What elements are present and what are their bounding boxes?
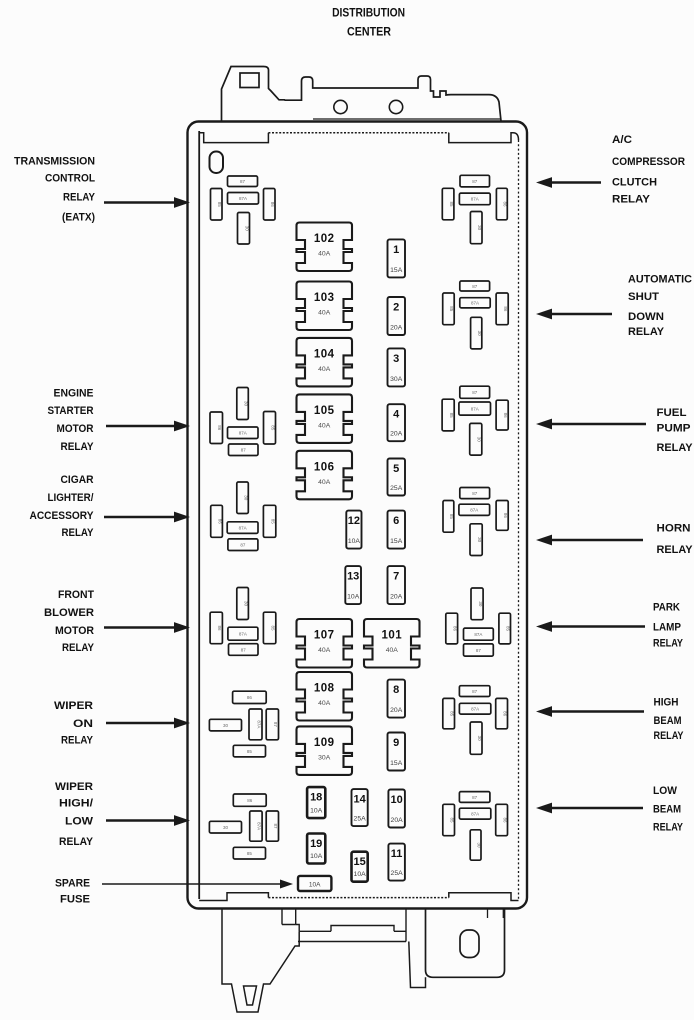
svg-text:87: 87 [472,491,478,496]
svg-text:10A: 10A [348,538,361,545]
svg-text:87: 87 [472,284,478,289]
svg-text:30: 30 [477,736,482,742]
svg-text:40A: 40A [318,251,331,258]
svg-text:FRONT: FRONT [58,589,94,601]
svg-text:ENGINE: ENGINE [54,388,94,400]
svg-text:4: 4 [393,409,400,421]
svg-text:86: 86 [503,306,508,312]
svg-text:87: 87 [476,648,482,653]
svg-text:30: 30 [243,401,248,407]
svg-text:85: 85 [449,514,454,520]
svg-text:103: 103 [314,292,335,304]
svg-text:87A: 87A [239,431,247,436]
svg-text:86: 86 [247,798,253,803]
svg-text:14: 14 [353,794,366,806]
svg-text:86: 86 [217,519,222,525]
svg-text:LAMP: LAMP [653,622,681,634]
svg-text:85: 85 [217,202,222,208]
svg-text:86: 86 [217,425,222,431]
svg-text:RELAY: RELAY [654,730,685,742]
svg-text:86: 86 [452,626,457,632]
svg-text:DISTRIBUTION: DISTRIBUTION [332,6,405,20]
svg-text:15A: 15A [390,760,403,767]
svg-text:85: 85 [449,202,454,208]
svg-text:30: 30 [476,842,481,848]
svg-text:86: 86 [503,513,508,519]
svg-text:30A: 30A [390,376,403,383]
svg-text:20A: 20A [390,707,403,714]
svg-text:(EATX): (EATX) [62,211,95,223]
svg-text:86: 86 [247,695,253,700]
svg-text:10A: 10A [310,853,323,860]
svg-text:PARK: PARK [653,602,680,614]
svg-text:10A: 10A [347,594,360,601]
svg-text:107: 107 [314,630,335,642]
svg-text:8: 8 [393,684,399,696]
svg-text:19: 19 [310,838,322,850]
svg-text:87: 87 [241,448,247,453]
svg-text:PUMP: PUMP [657,423,691,435]
svg-text:BLOWER: BLOWER [44,607,94,619]
svg-text:109: 109 [314,737,335,749]
svg-text:RELAY: RELAY [59,836,94,848]
svg-text:87A: 87A [474,632,482,637]
svg-text:HIGH: HIGH [654,697,679,709]
svg-text:DOWN: DOWN [628,311,664,323]
svg-text:FUEL: FUEL [657,407,687,419]
svg-text:9: 9 [393,737,399,749]
svg-text:RELAY: RELAY [63,192,96,204]
svg-text:13: 13 [347,571,359,583]
svg-text:87: 87 [241,647,247,652]
svg-text:10A: 10A [310,808,323,815]
svg-text:106: 106 [314,461,335,473]
svg-text:6: 6 [393,515,399,527]
svg-text:87A: 87A [256,720,261,728]
svg-text:10A: 10A [354,871,367,878]
svg-text:STARTER: STARTER [48,405,94,417]
svg-text:RELAY: RELAY [612,194,651,206]
svg-text:15A: 15A [390,538,403,545]
svg-text:20A: 20A [390,431,403,438]
svg-text:18: 18 [310,792,322,804]
svg-text:85: 85 [270,425,275,431]
svg-text:CIGAR: CIGAR [61,474,94,486]
svg-text:40A: 40A [318,700,331,707]
svg-text:30A: 30A [318,754,331,761]
svg-text:105: 105 [314,405,335,417]
svg-text:5: 5 [393,463,399,475]
svg-text:COMPRESSOR: COMPRESSOR [612,156,685,168]
svg-text:87A: 87A [470,508,478,513]
svg-text:10: 10 [390,794,402,806]
svg-text:MOTOR: MOTOR [57,423,94,435]
svg-text:85: 85 [449,306,454,312]
svg-text:87A: 87A [257,822,262,830]
svg-text:87: 87 [472,390,478,395]
svg-text:ACCESSORY: ACCESSORY [30,510,95,522]
svg-text:87A: 87A [471,197,479,202]
svg-text:7: 7 [393,571,399,583]
svg-text:87A: 87A [471,406,479,411]
svg-text:20A: 20A [390,594,403,601]
svg-text:FUSE: FUSE [60,894,90,906]
svg-text:25A: 25A [390,485,403,492]
svg-text:40A: 40A [386,647,399,654]
svg-text:87A: 87A [239,632,247,637]
svg-text:CENTER: CENTER [347,25,391,39]
svg-text:85: 85 [270,625,275,631]
svg-text:40A: 40A [318,310,331,317]
svg-text:20A: 20A [390,325,403,332]
svg-text:30: 30 [477,537,482,543]
svg-text:87A: 87A [471,707,479,712]
svg-text:10A: 10A [309,882,321,889]
svg-text:WIPER: WIPER [55,781,93,793]
svg-text:MOTOR: MOTOR [55,625,94,637]
svg-text:85: 85 [270,519,275,525]
svg-text:85: 85 [505,626,510,632]
svg-text:WIPER: WIPER [54,700,93,712]
svg-text:1: 1 [393,244,399,256]
svg-text:3: 3 [393,353,399,365]
svg-text:CONTROL: CONTROL [45,173,95,185]
svg-text:30: 30 [478,601,483,607]
svg-text:SHUT: SHUT [628,291,659,303]
svg-text:RELAY: RELAY [61,735,94,747]
svg-text:87A: 87A [471,812,479,817]
svg-text:RELAY: RELAY [61,441,95,453]
svg-text:TRANSMISSION: TRANSMISSION [14,156,95,168]
svg-text:87: 87 [273,824,278,830]
svg-text:LOW: LOW [65,816,94,828]
svg-text:86: 86 [217,625,222,631]
svg-text:40A: 40A [318,422,331,429]
svg-text:40A: 40A [318,479,331,486]
svg-text:30: 30 [223,723,229,728]
svg-text:87: 87 [240,543,246,548]
svg-text:104: 104 [314,348,335,360]
svg-text:RELAY: RELAY [653,638,684,650]
svg-text:CLUTCH: CLUTCH [612,177,657,189]
svg-text:2: 2 [393,302,399,314]
svg-text:87A: 87A [239,525,247,530]
svg-text:40A: 40A [318,366,331,373]
svg-text:86: 86 [503,413,508,419]
svg-text:25A: 25A [354,816,367,823]
svg-text:LOW: LOW [653,785,678,797]
svg-text:RELAY: RELAY [657,442,694,454]
svg-text:25A: 25A [391,870,404,877]
svg-text:30: 30 [243,601,248,607]
svg-text:101: 101 [381,630,402,642]
svg-text:87A: 87A [471,301,479,306]
svg-text:RELAY: RELAY [653,822,684,834]
svg-text:A/C: A/C [612,134,632,146]
svg-text:85: 85 [449,711,454,717]
svg-text:ON: ON [73,718,93,730]
svg-text:30: 30 [477,225,482,231]
svg-text:HORN: HORN [657,523,691,535]
svg-text:30: 30 [244,226,249,232]
svg-text:40A: 40A [318,647,331,654]
svg-text:86: 86 [502,711,507,717]
svg-text:87: 87 [240,179,246,184]
svg-text:12: 12 [348,515,360,527]
svg-text:RELAY: RELAY [62,527,95,539]
svg-text:30: 30 [223,825,229,830]
svg-text:86: 86 [270,202,275,208]
svg-text:AUTOMATIC: AUTOMATIC [628,274,692,286]
svg-text:RELAY: RELAY [628,326,665,338]
svg-text:BEAM: BEAM [654,715,682,727]
svg-text:20A: 20A [391,817,404,824]
svg-text:30: 30 [477,331,482,337]
svg-text:87: 87 [472,179,478,184]
svg-text:85: 85 [449,413,454,419]
svg-text:11: 11 [391,848,403,860]
svg-text:85: 85 [247,749,253,754]
svg-text:LIGHTER/: LIGHTER/ [48,492,94,504]
svg-text:87: 87 [273,722,278,728]
svg-text:85: 85 [247,851,253,856]
svg-text:RELAY: RELAY [62,642,95,654]
svg-text:15: 15 [353,856,365,868]
svg-text:86: 86 [502,817,507,823]
svg-text:HIGH/: HIGH/ [59,798,93,810]
svg-text:BEAM: BEAM [653,804,681,816]
svg-text:85: 85 [449,818,454,824]
svg-text:15A: 15A [390,267,403,274]
svg-text:87A: 87A [239,196,247,201]
svg-text:87: 87 [472,689,478,694]
svg-text:30: 30 [243,495,248,501]
svg-text:SPARE: SPARE [55,878,90,890]
svg-text:30: 30 [477,437,482,443]
svg-text:108: 108 [314,683,335,695]
svg-text:87: 87 [472,795,478,800]
svg-text:86: 86 [503,201,508,207]
svg-text:RELAY: RELAY [657,544,694,556]
svg-text:102: 102 [314,233,335,245]
